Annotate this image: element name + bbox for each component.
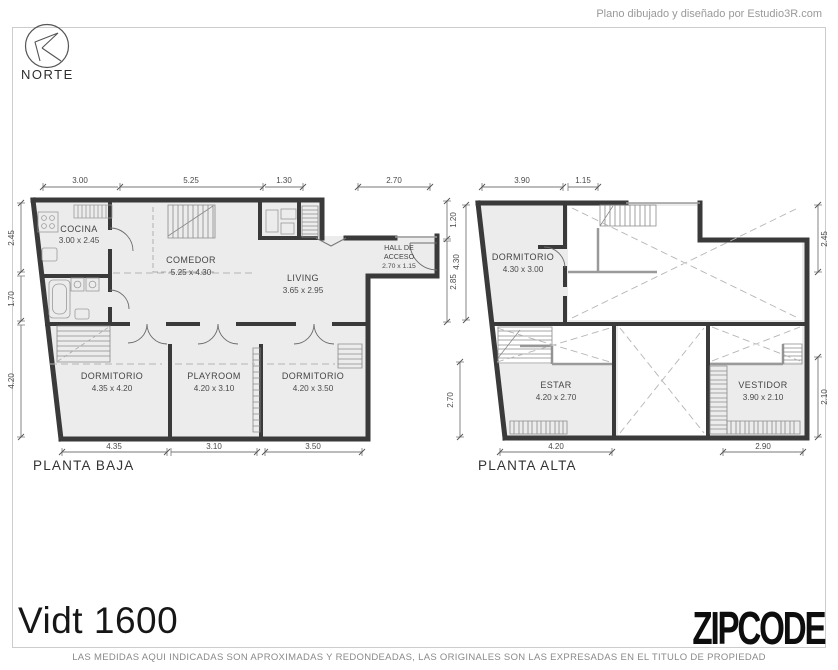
dim-label: 5.25 <box>183 176 199 185</box>
north-compass-icon <box>26 25 69 68</box>
dim-label: 2.70 <box>386 176 402 185</box>
room-dims-hall: 2.70 x 1.15 <box>382 263 416 270</box>
room-dims-vestidor: 3.90 x 2.10 <box>743 393 784 402</box>
dim-label: 2.10 <box>820 389 829 405</box>
dim-label: 3.50 <box>305 442 321 451</box>
room-dims-dormitorio1: 4.35 x 4.20 <box>92 384 133 393</box>
room-dims-living: 3.65 x 2.95 <box>283 286 324 295</box>
room-label-playroom: PLAYROOM <box>187 371 241 381</box>
planta-alta-plan: 3.90 1.15 4.20 2.90 4.30 2.70 2.45 2.10 <box>446 176 829 473</box>
room-label-living: LIVING <box>287 273 319 283</box>
room-label-estar: ESTAR <box>540 380 571 390</box>
room-label-dormitorio2: DORMITORIO <box>282 371 344 381</box>
room-dims-playroom: 4.20 x 3.10 <box>194 384 235 393</box>
alta-dims-bottom: 4.20 2.90 <box>497 442 806 456</box>
room-label-comedor: COMEDOR <box>166 255 216 265</box>
dim-label: 3.00 <box>72 176 88 185</box>
room-label-dormitorio-alta: DORMITORIO <box>492 252 554 262</box>
room-dims-estar: 4.20 x 2.70 <box>536 393 577 402</box>
dim-label: 4.35 <box>106 442 122 451</box>
dim-label: 2.45 <box>820 231 829 247</box>
dim-label: 2.70 <box>446 392 455 408</box>
alta-dims-right: 2.45 2.10 <box>814 202 829 440</box>
room-dims-dormitorio2: 4.20 x 3.50 <box>293 384 334 393</box>
dim-label: 2.90 <box>755 442 771 451</box>
room-dims-comedor: 5.25 x 4.30 <box>171 268 212 277</box>
dim-label: 1.20 <box>449 212 458 228</box>
dim-label: 3.10 <box>206 442 222 451</box>
baja-dims-top: 3.00 5.25 1.30 2.70 <box>40 176 433 191</box>
room-label-cocina: COCINA <box>60 224 97 234</box>
room-dims-dormitorio-alta: 4.30 x 3.00 <box>503 265 544 274</box>
baja-dims-left: 2.45 1.70 4.20 <box>7 200 25 440</box>
zipcode-logo: ZIPCODE <box>692 601 824 655</box>
room-label-hall-2: ACCESO <box>384 252 415 261</box>
alta-dims-top: 3.90 1.15 <box>479 176 601 191</box>
dim-label: 4.30 <box>452 254 461 270</box>
dim-label: 1.15 <box>575 176 591 185</box>
room-label-vestidor: VESTIDOR <box>738 380 787 390</box>
dim-label: 2.85 <box>449 274 458 290</box>
planta-baja-plan: 3.00 5.25 1.30 2.70 4.35 3.10 3.50 2.45 … <box>7 176 458 473</box>
dim-label: 2.45 <box>7 230 16 246</box>
baja-dims-bottom: 4.35 3.10 3.50 <box>59 442 365 456</box>
dim-label: 1.70 <box>7 291 16 307</box>
alta-dims-left: 4.30 2.70 <box>446 202 470 440</box>
credit-text: Plano dibujado y diseñado por Estudio3R.… <box>596 8 822 20</box>
room-label-hall-1: HALL DE <box>384 243 414 252</box>
dim-label: 4.20 <box>548 442 564 451</box>
room-dims-cocina: 3.00 x 2.45 <box>59 236 100 245</box>
planta-baja-title: PLANTA BAJA <box>33 458 134 473</box>
plan-sheet: NORTE <box>0 0 838 670</box>
room-label-dormitorio1: DORMITORIO <box>81 371 143 381</box>
dim-label: 4.20 <box>7 373 16 389</box>
floorplan-canvas: NORTE <box>0 0 838 670</box>
address-title: Vidt 1600 <box>18 600 178 642</box>
disclaimer-text: LAS MEDIDAS AQUI INDICADAS SON APROXIMAD… <box>0 652 838 663</box>
planta-alta-title: PLANTA ALTA <box>478 458 577 473</box>
north-label: NORTE <box>21 67 74 82</box>
dim-label: 1.30 <box>276 176 292 185</box>
dim-label: 3.90 <box>514 176 530 185</box>
